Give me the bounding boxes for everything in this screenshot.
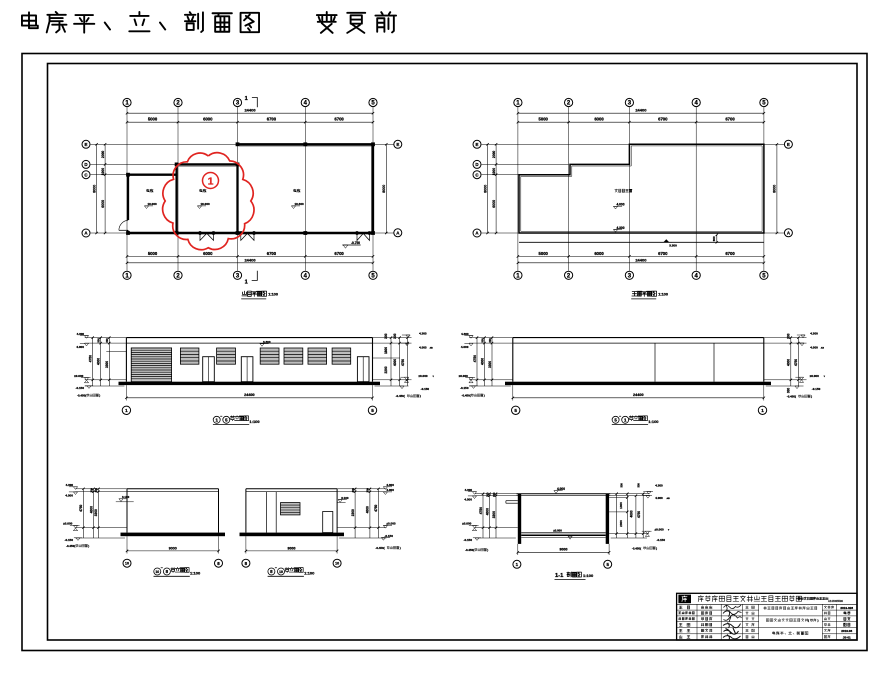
svg-text:2019-028: 2019-028: [840, 606, 853, 610]
svg-text:6000: 6000: [203, 251, 213, 256]
svg-text:▼: ▼: [668, 529, 670, 532]
svg-text:4.000: 4.000: [76, 345, 84, 349]
svg-text:4000: 4000: [485, 508, 489, 515]
svg-text:8000: 8000: [483, 185, 487, 193]
svg-text:600: 600: [712, 236, 716, 241]
svg-text:E: E: [787, 142, 790, 147]
svg-text:300: 300: [480, 338, 484, 343]
svg-text:~: ~: [619, 414, 621, 418]
svg-text:(: (: [808, 618, 809, 622]
svg-text:±0.000: ±0.000: [386, 522, 395, 526]
svg-text:300: 300: [351, 487, 355, 492]
svg-text:1:100: 1:100: [658, 293, 668, 297]
svg-text:6700: 6700: [267, 117, 277, 122]
svg-text:-0.150: -0.150: [460, 386, 469, 390]
svg-text:4000: 4000: [787, 359, 791, 366]
svg-text:4.300: 4.300: [386, 483, 394, 487]
svg-text:10.000: 10.000: [148, 202, 158, 206]
svg-text:1:100: 1:100: [304, 571, 315, 576]
svg-text:-0.450(: -0.450(: [77, 394, 86, 398]
svg-text:E: E: [396, 142, 399, 147]
svg-text:5000: 5000: [539, 251, 549, 256]
svg-text:5000: 5000: [148, 117, 158, 122]
svg-text:4.300: 4.300: [617, 226, 625, 230]
svg-text:E: E: [476, 142, 479, 147]
svg-text:4.000: 4.000: [617, 203, 625, 207]
svg-text:4.000: 4.000: [461, 345, 469, 349]
svg-text:1: 1: [125, 408, 128, 413]
svg-text:4750: 4750: [473, 355, 477, 362]
svg-text:±0.000: ±0.000: [459, 374, 468, 378]
svg-text:3.300: 3.300: [669, 243, 677, 247]
svg-text:8000: 8000: [382, 185, 386, 193]
svg-text:AB: AB: [821, 347, 825, 350]
svg-text:~: ~: [275, 566, 277, 570]
svg-text:2300: 2300: [619, 520, 623, 527]
svg-text:10: 10: [155, 570, 159, 574]
svg-text:24400: 24400: [633, 393, 644, 397]
svg-text:6000: 6000: [203, 117, 213, 122]
svg-text:±0.000: ±0.000: [553, 528, 562, 532]
svg-text:-0.150: -0.150: [421, 387, 430, 391]
svg-text:6700: 6700: [658, 117, 668, 122]
svg-text:4.300: 4.300: [66, 483, 74, 487]
svg-text:24400: 24400: [244, 108, 256, 113]
svg-text:9000: 9000: [288, 546, 296, 550]
svg-text:1800: 1800: [384, 347, 388, 354]
svg-text:JS-01: JS-01: [843, 635, 851, 639]
svg-text:E: E: [85, 142, 88, 147]
svg-text:24400: 24400: [635, 257, 647, 262]
svg-text:2000: 2000: [101, 151, 105, 159]
svg-text:6700: 6700: [334, 251, 344, 256]
svg-text:D: D: [475, 162, 478, 167]
svg-text:1: 1: [761, 408, 764, 413]
svg-text:300: 300: [94, 487, 98, 492]
svg-text:300: 300: [105, 338, 109, 343]
svg-text:4000: 4000: [97, 358, 101, 365]
svg-text:▼: ▼: [432, 375, 434, 378]
svg-text:3.100: 3.100: [341, 496, 349, 500]
svg-text:4750: 4750: [637, 511, 641, 518]
svg-text:3300: 3300: [105, 361, 109, 368]
svg-text:): ): [656, 546, 657, 550]
svg-text:2000: 2000: [492, 151, 496, 159]
svg-text:): ): [99, 394, 100, 398]
svg-text:4.000: 4.000: [386, 488, 394, 492]
svg-text:-0.450(: -0.450(: [465, 548, 474, 552]
svg-text:10: 10: [279, 570, 283, 574]
svg-text:3.100: 3.100: [122, 495, 130, 499]
svg-text:±0.000: ±0.000: [655, 528, 664, 532]
svg-text:6700: 6700: [725, 117, 735, 122]
svg-text:4.000: 4.000: [419, 346, 427, 350]
svg-text:-0.450(: -0.450(: [462, 394, 471, 398]
svg-text:1:100: 1:100: [268, 293, 278, 297]
svg-text:-0.150: -0.150: [384, 534, 393, 538]
svg-text:1: 1: [245, 280, 248, 286]
svg-text:4000: 4000: [630, 510, 634, 517]
svg-text:300: 300: [636, 483, 640, 488]
svg-text:300: 300: [366, 487, 370, 492]
svg-text:): ): [811, 395, 812, 399]
svg-text:300: 300: [787, 333, 791, 339]
svg-text:1:100: 1:100: [249, 419, 260, 424]
svg-text:300: 300: [384, 333, 388, 339]
svg-text:-0.150: -0.150: [657, 538, 666, 542]
svg-text:1000: 1000: [492, 168, 496, 176]
svg-text:4000: 4000: [480, 358, 484, 365]
svg-text:±0.000: ±0.000: [418, 374, 427, 378]
svg-text:4750: 4750: [401, 359, 405, 366]
svg-text:): ): [88, 544, 89, 548]
svg-text:4750: 4750: [794, 359, 798, 366]
svg-text:5000: 5000: [539, 117, 549, 122]
svg-text:9000: 9000: [560, 548, 568, 552]
svg-text:1: 1: [208, 175, 214, 187]
svg-text:16.000: 16.000: [201, 202, 211, 206]
svg-text:2200: 2200: [384, 366, 388, 373]
svg-text:300: 300: [97, 338, 101, 343]
svg-text:4.300: 4.300: [465, 488, 473, 492]
svg-text:A144005599: A144005599: [828, 599, 843, 603]
svg-text:-0.450(: -0.450(: [66, 544, 75, 548]
svg-text:10.300: 10.300: [295, 202, 305, 206]
svg-text:6000: 6000: [594, 117, 604, 122]
svg-text:6000: 6000: [101, 200, 105, 208]
svg-text:4.300: 4.300: [77, 332, 85, 336]
svg-text:300: 300: [787, 388, 791, 394]
svg-text:1:100: 1:100: [583, 573, 594, 578]
svg-text:5: 5: [371, 408, 374, 413]
svg-text:4000: 4000: [366, 506, 370, 513]
svg-text:AB: AB: [667, 497, 671, 500]
svg-text:10: 10: [335, 562, 339, 566]
svg-text:±0.000: ±0.000: [462, 522, 471, 526]
svg-text:5: 5: [514, 408, 517, 413]
svg-text:4.000: 4.000: [464, 498, 472, 502]
svg-text:±0.000: ±0.000: [63, 522, 72, 526]
svg-text:300: 300: [488, 338, 492, 343]
svg-text:±0.000: ±0.000: [810, 374, 819, 378]
svg-text:6700: 6700: [658, 251, 668, 256]
svg-text:1: 1: [245, 96, 248, 102]
svg-text:6700: 6700: [267, 251, 277, 256]
svg-text:): ): [420, 394, 421, 398]
svg-text:4750: 4750: [479, 507, 483, 514]
svg-text:6700: 6700: [725, 251, 735, 256]
svg-text:-0.150: -0.150: [64, 538, 73, 542]
svg-text:4.000: 4.000: [810, 346, 818, 350]
svg-text:4.300: 4.300: [810, 332, 818, 336]
svg-text:300: 300: [393, 333, 397, 339]
svg-text:3.300: 3.300: [263, 340, 271, 344]
svg-text:2300: 2300: [351, 509, 355, 516]
svg-text:-0.450(: -0.450(: [396, 394, 405, 398]
svg-text:6000: 6000: [594, 251, 604, 256]
svg-text:-0.150: -0.150: [812, 387, 821, 391]
svg-text:): ): [818, 618, 819, 622]
svg-text:6700: 6700: [334, 117, 344, 122]
svg-text:300: 300: [485, 492, 489, 497]
svg-text:4.300: 4.300: [419, 332, 427, 336]
svg-text:3300: 3300: [492, 511, 496, 518]
svg-text:4000: 4000: [89, 506, 93, 513]
svg-text:4000: 4000: [393, 359, 397, 366]
svg-text:300: 300: [619, 483, 623, 488]
svg-text:4.000: 4.000: [655, 496, 663, 500]
svg-text:8000: 8000: [773, 185, 777, 193]
svg-text:8000: 8000: [92, 185, 96, 193]
svg-text:3300: 3300: [94, 509, 98, 516]
svg-text:4.000: 4.000: [557, 487, 565, 491]
svg-text:24400: 24400: [635, 108, 647, 113]
svg-text:-0.450(: -0.450(: [375, 546, 384, 550]
svg-text:4750: 4750: [374, 504, 378, 511]
svg-text:9000: 9000: [169, 546, 177, 550]
svg-text:-0.450(: -0.450(: [787, 395, 796, 399]
svg-text:): ): [400, 546, 401, 550]
svg-text:±0.000: ±0.000: [74, 374, 83, 378]
svg-text:~: ~: [161, 566, 163, 570]
svg-text:-0.150: -0.150: [75, 386, 84, 390]
svg-text:1300: 1300: [619, 502, 623, 509]
svg-text:): ): [484, 394, 485, 398]
svg-text:1000: 1000: [101, 168, 105, 176]
svg-text:D: D: [84, 162, 87, 167]
svg-text:1-1: 1-1: [555, 573, 564, 579]
svg-text:4.000: 4.000: [65, 494, 73, 498]
svg-text:24400: 24400: [244, 257, 256, 262]
svg-text:▼: ▼: [823, 375, 825, 378]
svg-text:AB: AB: [430, 347, 434, 350]
svg-text:-0.450(: -0.450(: [632, 546, 641, 550]
svg-text:4750: 4750: [89, 355, 93, 362]
svg-text:1:100: 1:100: [190, 571, 201, 576]
svg-text:300: 300: [492, 492, 496, 497]
svg-text:5000: 5000: [148, 251, 158, 256]
svg-text:24400: 24400: [244, 393, 255, 397]
svg-text:6000: 6000: [492, 200, 496, 208]
svg-text:3300: 3300: [488, 361, 492, 368]
svg-text:4750: 4750: [79, 504, 83, 511]
svg-text:4.300: 4.300: [461, 332, 469, 336]
svg-text:-0.750: -0.750: [351, 241, 360, 245]
svg-text:): ): [487, 548, 488, 552]
svg-text:-0.150: -0.150: [463, 538, 472, 542]
svg-text:10: 10: [125, 562, 129, 566]
svg-text:~: ~: [220, 414, 222, 418]
svg-text:2019.08: 2019.08: [841, 629, 852, 633]
svg-text:4.300: 4.300: [655, 483, 663, 487]
svg-text:300: 300: [89, 487, 93, 492]
svg-text:1:100: 1:100: [648, 419, 659, 424]
